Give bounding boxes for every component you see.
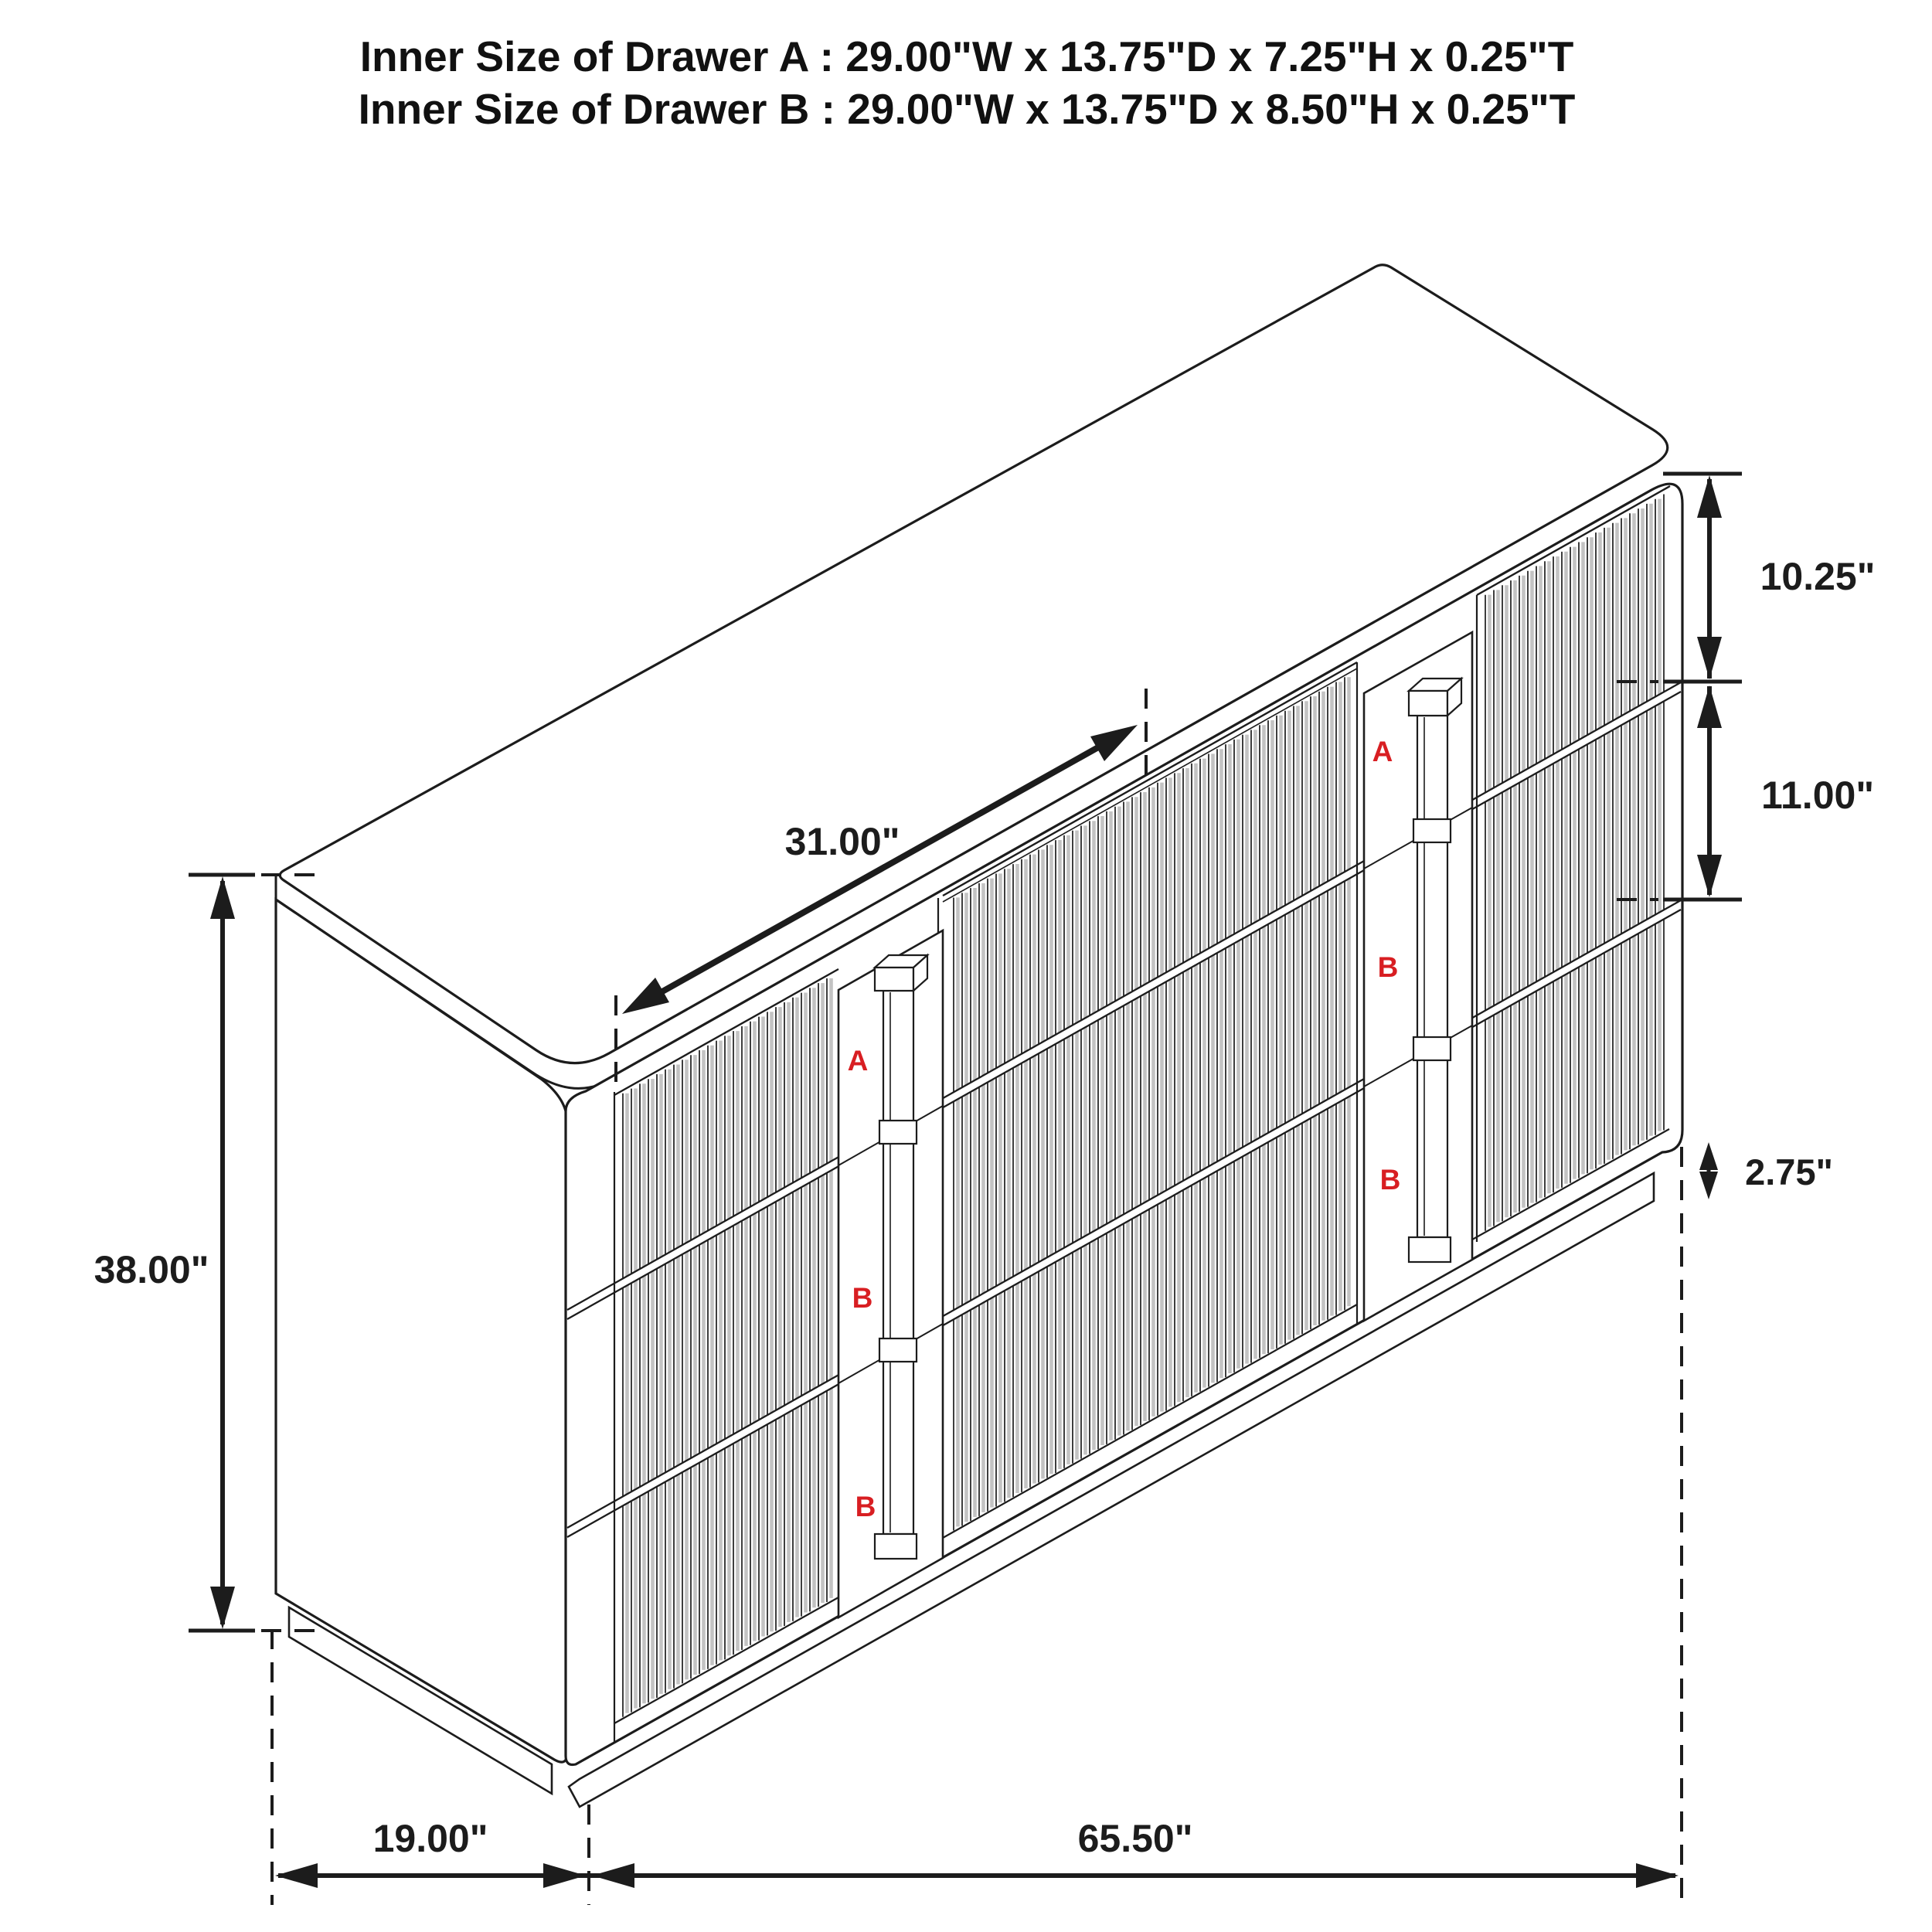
left-drawer-b1-label: B	[852, 1282, 873, 1314]
depth-label: 19.00"	[373, 1817, 488, 1860]
overall-width-label: 65.50"	[1078, 1817, 1193, 1860]
left-drawer-a-label: A	[848, 1045, 869, 1077]
top-drawer-height-label: 10.25"	[1760, 555, 1876, 598]
dimension-base-height: 2.75"	[1699, 1142, 1833, 1199]
title-block: Inner Size of Drawer A : 29.00"W x 13.75…	[359, 32, 1576, 133]
right-drawer-b2-label: B	[1380, 1164, 1401, 1196]
title-line-1: Inner Size of Drawer A : 29.00"W x 13.75…	[360, 32, 1574, 80]
right-drawer-a-label: A	[1372, 736, 1393, 767]
base-height-label: 2.75"	[1745, 1151, 1833, 1192]
left-drawer-b2-label: B	[855, 1491, 876, 1522]
cabinet-drawing: A B B A B B	[276, 265, 1682, 1807]
dresser-dimension-diagram: Inner Size of Drawer A : 29.00"W x 13.75…	[0, 0, 1932, 1932]
right-drawer-b1-label: B	[1378, 951, 1399, 983]
title-line-2: Inner Size of Drawer B : 29.00"W x 13.75…	[359, 85, 1576, 133]
center-drawer-width-label: 31.00"	[785, 820, 900, 863]
overall-height-label: 38.00"	[94, 1248, 209, 1291]
middle-drawer-height-label: 11.00"	[1761, 774, 1874, 817]
